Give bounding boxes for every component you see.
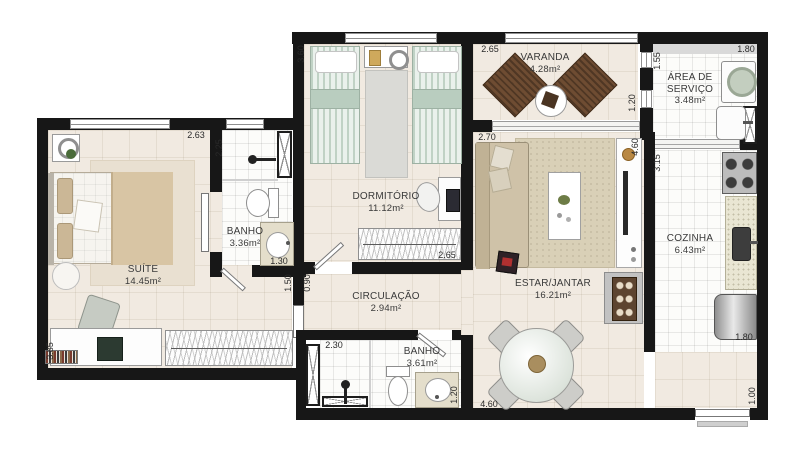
varanda-right-wall-b (640, 68, 653, 90)
suite-left-wall (37, 118, 48, 378)
wardrobe-rail (171, 348, 287, 349)
dim-banho2-right: 1.20 (449, 386, 459, 404)
tv-decor-1 (631, 247, 636, 252)
coffee-table (548, 172, 581, 240)
dormitorio-label: DORMITÓRIO 11.12m² (353, 191, 420, 214)
dim-entry-width: 1.00 (747, 387, 757, 405)
suite-duvet (111, 172, 173, 265)
banho2-shower-column (344, 388, 347, 404)
dim-dormitorio-width: 2.65 (438, 250, 456, 260)
banho2-faucet (435, 395, 439, 399)
banho1-area: 3.36m² (227, 238, 264, 250)
dim-estar-bottom: 4.60 (480, 399, 498, 409)
banho2-top-wall-right (452, 330, 461, 340)
dim-banho1-depth: 2.25 (214, 139, 224, 157)
kitchen-counter (725, 196, 757, 290)
cozinha-area: 6.43m² (667, 245, 713, 257)
dormitorio-bottom-wall-left (304, 262, 315, 274)
varanda-table (535, 85, 567, 117)
bed-right-pillow (417, 51, 459, 73)
dim-banho2-width: 2.30 (325, 340, 343, 350)
dormitorio-window (345, 33, 437, 43)
suite-door (201, 193, 209, 252)
estar-jantar-area: 16.21m² (515, 290, 591, 302)
banho1-shower-arm (256, 158, 276, 161)
varanda-name: VARANDA (520, 52, 569, 64)
bar-bottles (612, 277, 637, 321)
banho1-basin (266, 232, 290, 258)
dining-table (499, 328, 574, 403)
area-servico-name: ÁREA DE SERVIÇO (657, 72, 723, 95)
banho2-shaft (306, 344, 320, 406)
banho1-shaft (277, 131, 292, 178)
banho1-window (226, 119, 264, 129)
tv-decor-2 (631, 257, 636, 262)
right-outer-wall (757, 32, 768, 420)
suite-window (70, 119, 170, 129)
cozinha-label: COZINHA 6.43m² (667, 233, 713, 256)
bed-left-blanket (310, 89, 360, 109)
dim-dormitorio-depth: 3.60 (296, 45, 306, 63)
circulacao-label: CIRCULAÇÃO 2.94m² (352, 291, 420, 314)
banho1-faucet (286, 241, 290, 245)
varanda-tray (541, 91, 559, 109)
dormitorio-lamp (389, 50, 409, 70)
dim-varanda-width: 2.65 (481, 44, 499, 54)
suite-area: 14.45m² (125, 276, 161, 288)
tv (623, 171, 628, 235)
dormitorio-computer (446, 189, 460, 212)
dim-estar-right: 4.60 (630, 138, 640, 156)
suite-pillow-2 (57, 223, 73, 259)
dim-servico-left: 1.55 (652, 52, 662, 70)
servico-sliding-door (653, 139, 740, 149)
circulacao-opening-floor (461, 270, 473, 335)
servico-window-upper (641, 52, 652, 68)
varanda-bottom-wall (461, 120, 492, 132)
kitchen-faucet (750, 241, 758, 244)
servico-window-lower (641, 90, 652, 108)
kitchen-sink (732, 227, 751, 261)
suite-pillow-1 (57, 178, 73, 214)
dim-estar-top: 2.70 (478, 132, 496, 142)
dormitorio-box (369, 50, 381, 66)
floor-plan: SUÍTE 14.45m² BANHO 3.36m² DORMITÓRIO 11… (0, 0, 798, 460)
wardrobe-rail-2 (363, 244, 456, 245)
banho2-area: 3.61m² (404, 358, 441, 370)
banho2-shower-divider (369, 340, 371, 408)
banho1-label: BANHO 3.36m² (227, 226, 264, 249)
cozinha-name: COZINHA (667, 233, 713, 245)
suite-throw-pillow (73, 199, 103, 232)
washing-machine (721, 61, 756, 103)
varanda-right-wall-a (640, 32, 653, 52)
suite-headboard (48, 173, 54, 265)
dormitorio-name: DORMITÓRIO (353, 191, 420, 203)
entrance-door (695, 409, 750, 417)
coffee-table-decor-2 (566, 217, 571, 222)
suite-wardrobe (165, 330, 293, 366)
suite-nightstand (52, 134, 80, 162)
banho1-toilet-bowl (246, 189, 270, 217)
banho2-toilet-bowl (388, 376, 408, 406)
entry-floor (655, 352, 757, 408)
coffee-table-decor-1 (557, 213, 562, 218)
bar-cabinet (604, 272, 643, 324)
dormitorio-bottom-wall-right (352, 262, 461, 274)
suite-bed (50, 172, 172, 264)
dim-servico-width: 1.80 (737, 44, 755, 54)
estar-ottoman (496, 251, 520, 275)
varanda-label: VARANDA 4.28m² (520, 52, 569, 75)
estar-jantar-name: ESTAR/JANTAR (515, 278, 591, 290)
circulacao-name: CIRCULAÇÃO (352, 291, 420, 303)
banho2-name: BANHO (404, 346, 441, 358)
dim-suite-depth: 3.85 (45, 342, 55, 360)
suite-name: SUÍTE (125, 264, 161, 276)
varanda-railing (505, 33, 638, 43)
suite-plant (66, 149, 76, 159)
suite-laptop (97, 337, 123, 361)
banho1-bottom-wall-right (252, 265, 306, 277)
dormitorio-area: 11.12m² (353, 203, 420, 215)
dining-centerpiece (528, 355, 546, 373)
area-servico-label: ÁREA DE SERVIÇO 3.48m² (657, 72, 723, 107)
dormitorio-desk (438, 177, 461, 221)
dim-banho1-width: 1.30 (270, 256, 288, 266)
dormitorio-rug (365, 70, 408, 178)
banho1-shower-divider (222, 179, 278, 181)
sofa (475, 142, 529, 268)
dim-suite-width: 2.63 (187, 130, 205, 140)
dim-circulacao-width: 0.90 (302, 274, 312, 292)
suite-label: SUÍTE 14.45m² (125, 264, 161, 287)
banho1-name: BANHO (227, 226, 264, 238)
coffee-table-plant (558, 195, 570, 205)
varanda-area: 4.28m² (520, 64, 569, 76)
ottoman-mark (502, 257, 513, 266)
estar-jantar-label: ESTAR/JANTAR 16.21m² (515, 278, 591, 301)
sofa-back (476, 143, 490, 269)
suite-banho1-wall-lower (210, 252, 222, 265)
suite-pouf (52, 262, 80, 290)
dim-cozinha-depth: 3.15 (652, 154, 662, 172)
entrance-step (697, 421, 748, 427)
bottom-wall-left (296, 408, 695, 420)
laundry-faucet (743, 121, 753, 124)
dim-cozinha-bottom: 1.80 (735, 332, 753, 342)
stove (722, 152, 757, 194)
dormitorio-right-wall (461, 32, 473, 270)
suite-bottom-wall (37, 368, 306, 380)
dormitorio-nightstand (364, 46, 408, 68)
area-servico-area: 3.48m² (657, 95, 723, 107)
dim-varanda-right: 1.20 (627, 94, 637, 112)
dim-hall-width: 1.50 (283, 274, 293, 292)
varanda-sliding-door (492, 121, 640, 131)
circulacao-area: 2.94m² (352, 303, 420, 315)
sofa-pillow-2 (488, 167, 512, 193)
bed-right-blanket (412, 89, 462, 109)
banho2-top-wall-left (296, 330, 418, 340)
banho2-label: BANHO 3.61m² (404, 346, 441, 369)
bed-left-pillow (315, 51, 357, 73)
dormitorio-bed-left (310, 46, 360, 164)
laundry-sink (716, 106, 746, 140)
dormitorio-bed-right (412, 46, 462, 164)
washer-door (727, 67, 757, 97)
